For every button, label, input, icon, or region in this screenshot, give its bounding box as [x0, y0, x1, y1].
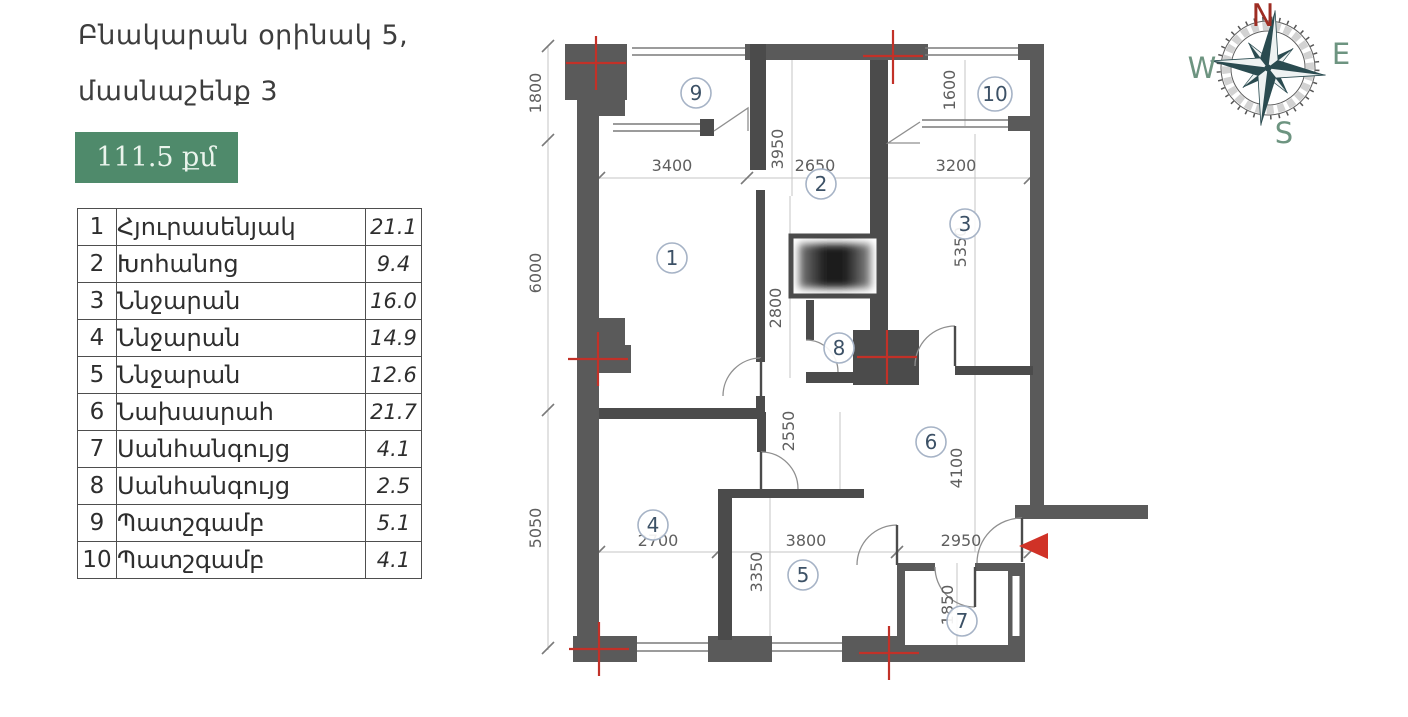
- room-marker: 10: [978, 77, 1012, 111]
- svg-text:2: 2: [815, 172, 828, 196]
- compass-east-label: E: [1332, 37, 1350, 71]
- shaft: [791, 236, 879, 296]
- dim-label: 3200: [936, 156, 977, 175]
- room-marker: 7: [947, 606, 977, 636]
- svg-text:4: 4: [647, 513, 660, 537]
- dim-label: 1600: [940, 70, 959, 111]
- floor-plan-page: Բնակարան օրինակ 5, մասնաշենք 3 111.5 քմ …: [0, 0, 1408, 717]
- dim-label: 3400: [652, 156, 693, 175]
- dim-label: 6000: [526, 253, 545, 294]
- room-marker: 1: [657, 243, 687, 273]
- svg-text:1: 1: [666, 246, 679, 270]
- svg-text:6: 6: [925, 430, 938, 454]
- room7-window-slot: [1013, 576, 1020, 636]
- room-marker: 6: [916, 427, 946, 457]
- entrance-arrow: [1019, 533, 1048, 559]
- dim-label: 2950: [941, 531, 982, 550]
- dim-label: 3800: [786, 531, 827, 550]
- compass-west-label: W: [1188, 51, 1217, 85]
- dim-label: 4100: [947, 448, 966, 489]
- compass-rose: N E W S: [1188, 0, 1351, 150]
- dim-label: 1800: [526, 73, 545, 114]
- room-marker: 2: [806, 169, 836, 199]
- svg-text:7: 7: [956, 609, 969, 633]
- floor-plan-svg: 1800 6000 5050 3400 2650 3200 3950 1600 …: [0, 0, 1408, 717]
- svg-text:5: 5: [797, 563, 810, 587]
- dim-label: 3350: [747, 552, 766, 593]
- room-marker: 9: [681, 78, 711, 108]
- dim-label: 2800: [766, 288, 785, 329]
- room-marker: 3: [950, 209, 980, 239]
- dim-label: 3950: [768, 129, 787, 170]
- dim-label: 2550: [779, 411, 798, 452]
- room-marker: 5: [788, 560, 818, 590]
- svg-text:3: 3: [959, 212, 972, 236]
- room-marker: 4: [638, 510, 668, 540]
- svg-text:8: 8: [833, 336, 846, 360]
- dim-label: 5050: [526, 508, 545, 549]
- compass-south-label: S: [1275, 116, 1293, 150]
- compass-north-label: N: [1251, 0, 1274, 34]
- svg-text:10: 10: [982, 82, 1007, 106]
- windows: [613, 48, 1018, 651]
- window-pier: [700, 119, 714, 136]
- svg-text:9: 9: [690, 81, 703, 105]
- room-marker: 8: [824, 333, 854, 363]
